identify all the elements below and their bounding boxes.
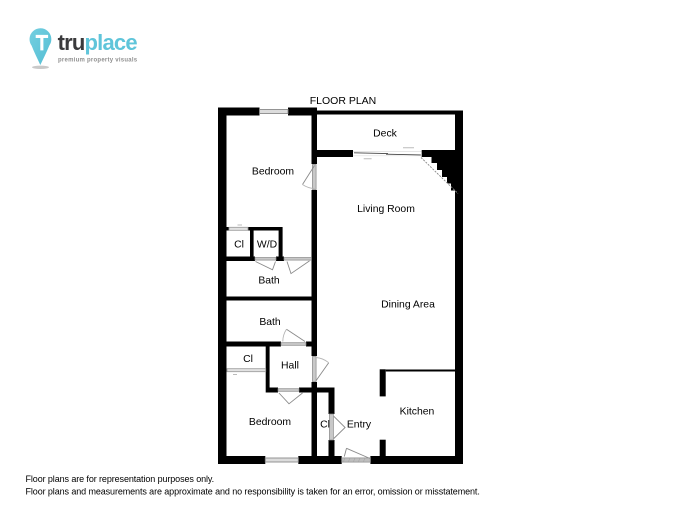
svg-text:Cl: Cl: [234, 240, 244, 251]
svg-text:Bedroom: Bedroom: [252, 167, 294, 178]
svg-text:Bath: Bath: [258, 276, 280, 287]
svg-text:Floor plans are for representa: Floor plans are for representation purpo…: [26, 474, 215, 484]
svg-text:Entry: Entry: [347, 420, 372, 431]
svg-text:premium property visuals: premium property visuals: [58, 58, 138, 64]
svg-text:Kitchen: Kitchen: [400, 407, 435, 418]
svg-text:Bedroom: Bedroom: [249, 417, 291, 428]
svg-text:FLOOR PLAN: FLOOR PLAN: [310, 95, 377, 107]
svg-text:Living Room: Living Room: [357, 204, 415, 215]
svg-text:W/D: W/D: [257, 240, 277, 251]
svg-text:Deck: Deck: [373, 129, 397, 140]
svg-text:truplace: truplace: [58, 30, 138, 55]
svg-text:Hall: Hall: [281, 361, 299, 372]
svg-text:Bath: Bath: [259, 317, 281, 328]
svg-text:Cl: Cl: [320, 420, 330, 431]
svg-text:Cl: Cl: [243, 354, 253, 365]
svg-text:Floor plans and measurements a: Floor plans and measurements are approxi…: [26, 487, 480, 497]
svg-text:Dining Area: Dining Area: [381, 300, 435, 311]
